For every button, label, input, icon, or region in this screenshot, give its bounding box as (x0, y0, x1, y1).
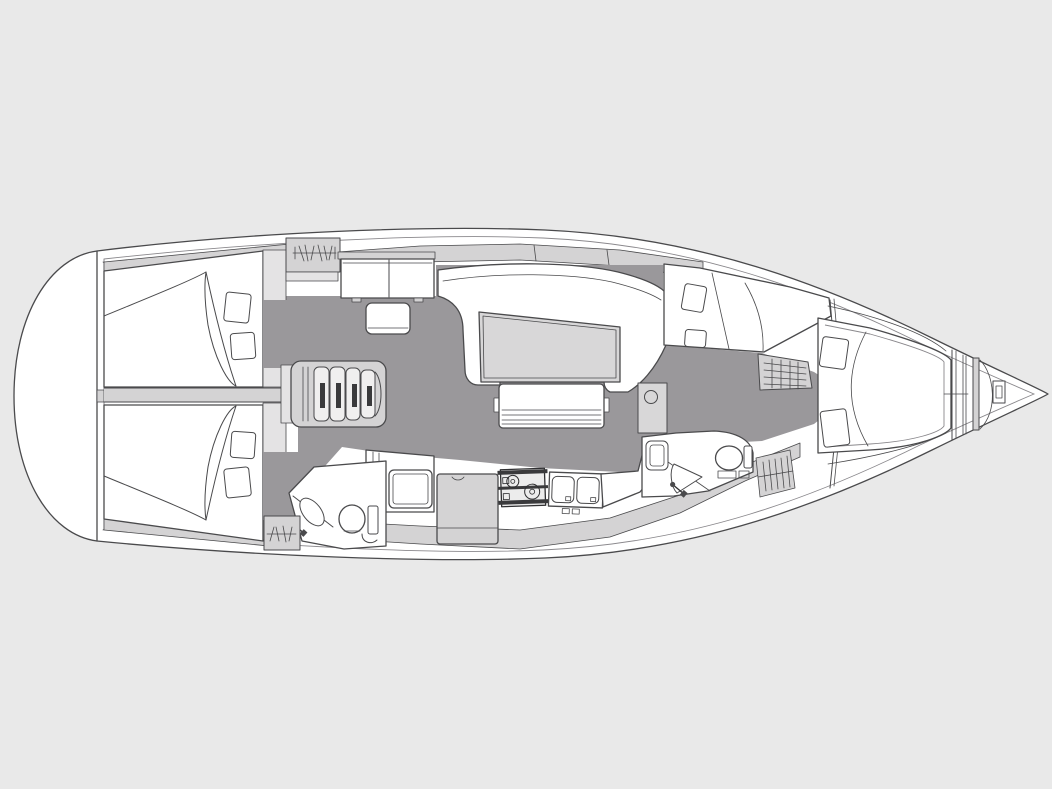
centerline-band (104, 388, 296, 402)
tread-slot (367, 386, 372, 406)
pillow (681, 283, 707, 312)
table-foot (352, 298, 361, 302)
stove (497, 468, 548, 507)
windlass (993, 381, 1005, 403)
toilet-bowl (716, 446, 743, 470)
aft-cabin-top (104, 251, 263, 387)
refrigerator (389, 470, 432, 508)
windlass-mount (973, 358, 979, 430)
wardrobe-top (286, 238, 340, 281)
pillow (224, 467, 252, 498)
companionway-steps (281, 361, 386, 427)
pillow (820, 409, 850, 448)
toilet-tank (368, 506, 378, 534)
wardrobe-bottom (264, 516, 300, 550)
yacht-floor-plan (0, 0, 1052, 789)
pillow (230, 332, 256, 360)
cabin-floor-patch (263, 300, 296, 368)
toilet-tank (744, 446, 752, 468)
locker-box (286, 238, 340, 272)
pillow (819, 336, 849, 369)
chart-table (341, 259, 434, 298)
chart-table-lip (338, 252, 435, 259)
pillow (230, 431, 256, 459)
tread-slot (320, 383, 325, 408)
toilet-bowl (339, 505, 365, 533)
locker-shelf (286, 272, 338, 281)
galley-cabinet (437, 474, 498, 544)
centerline-notch (97, 390, 104, 402)
tread-slot (352, 384, 357, 407)
aft-cabin-bottom (104, 405, 263, 541)
table-foot (414, 298, 423, 302)
bench-seat (499, 384, 604, 428)
pillow (684, 329, 706, 347)
salon-bench (494, 384, 609, 428)
aft-centerline-bulkhead (97, 388, 296, 402)
galley-end-cabinet (638, 383, 667, 433)
tread-slot (336, 383, 341, 408)
nav-seat (366, 303, 410, 334)
cabin-floor-patch (263, 452, 296, 520)
locker-box (264, 516, 300, 550)
pillow (223, 292, 251, 323)
